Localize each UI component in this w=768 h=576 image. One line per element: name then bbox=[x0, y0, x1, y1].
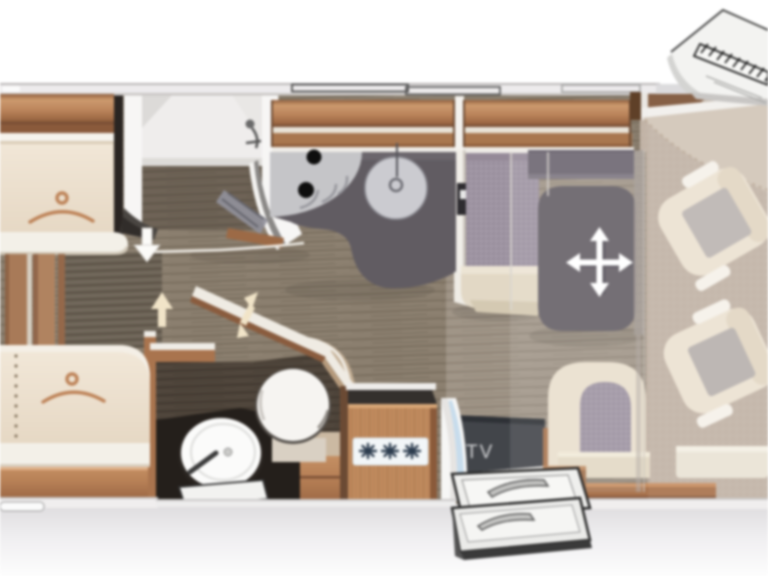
svg-text:TV: TV bbox=[466, 442, 494, 463]
